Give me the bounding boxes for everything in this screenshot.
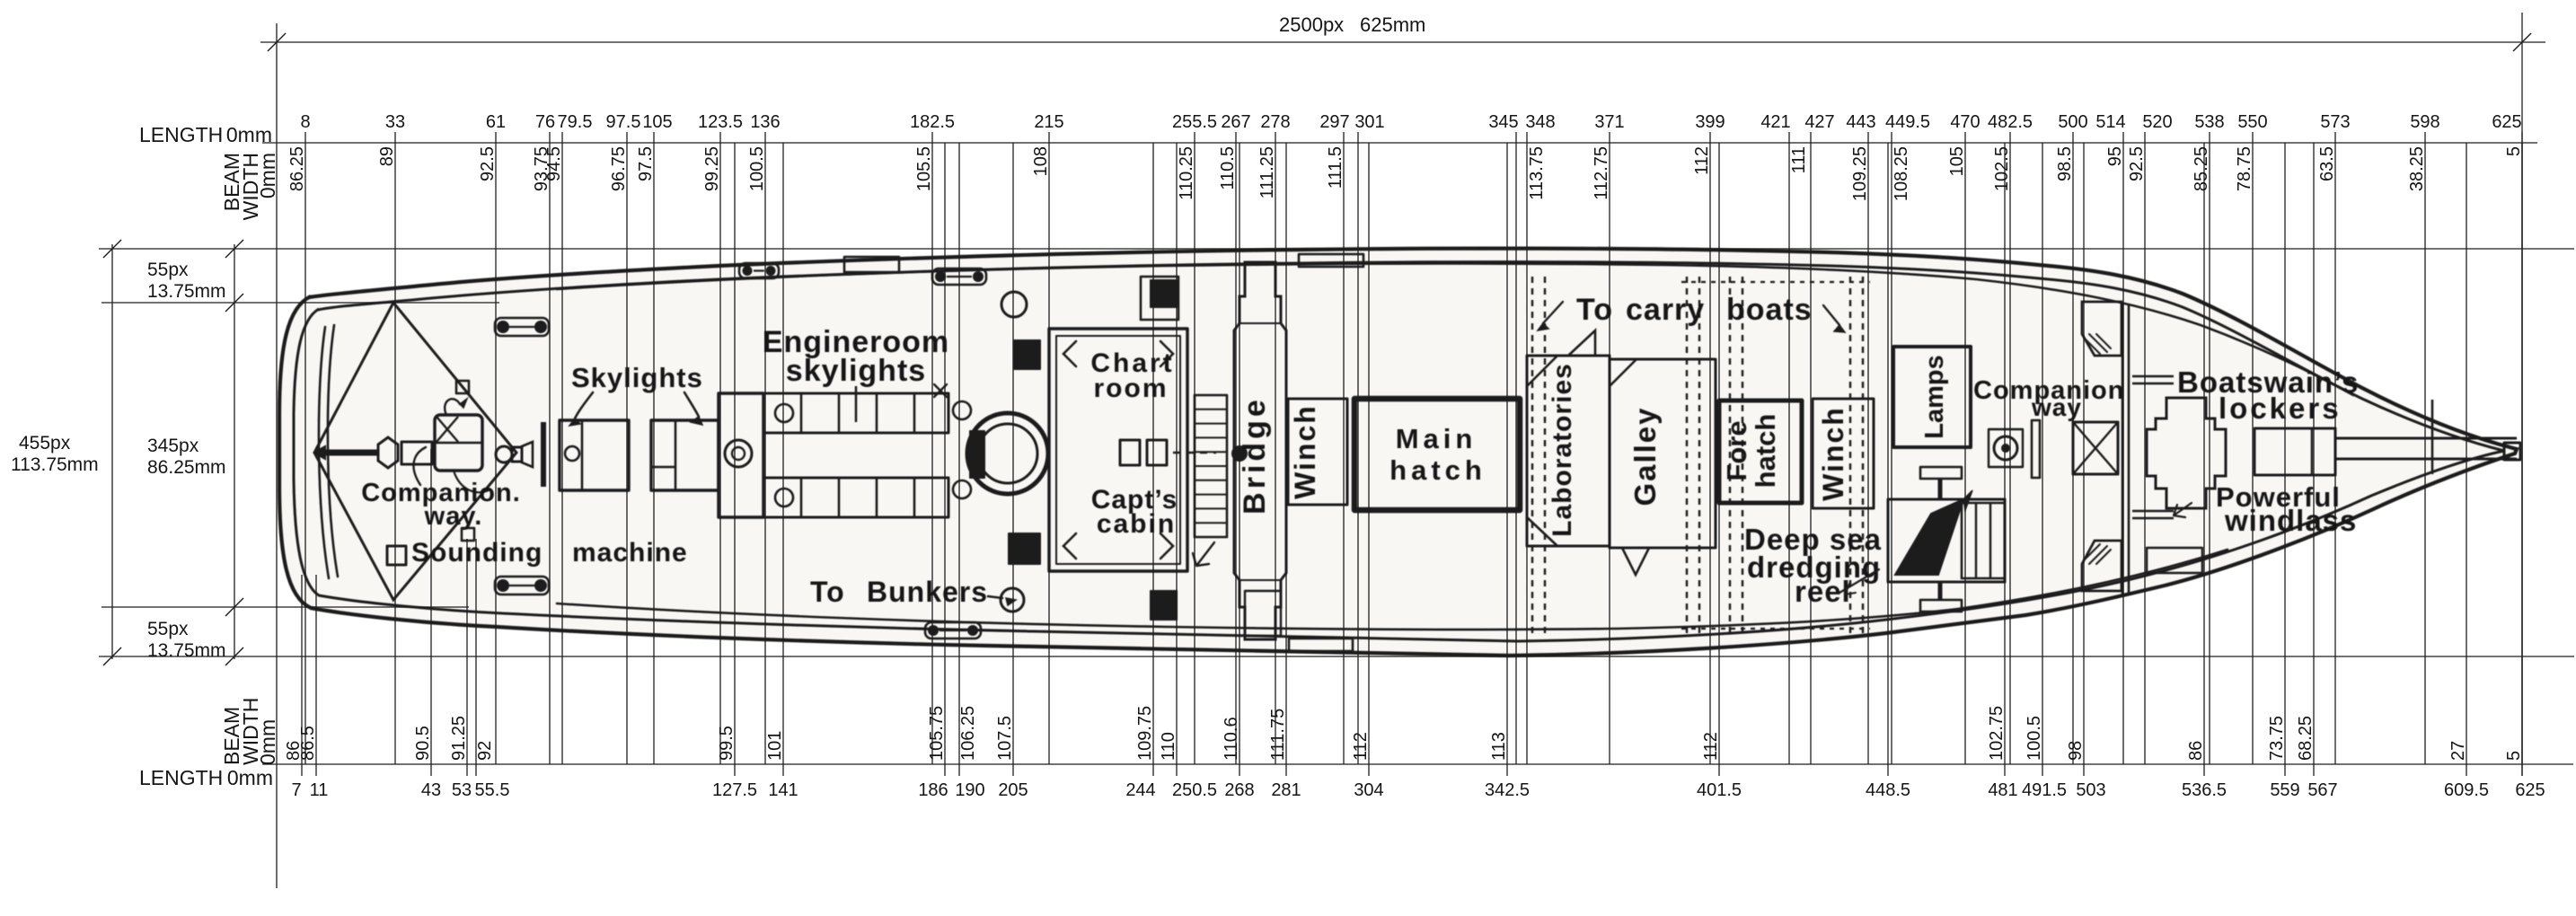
svg-text:448.5: 448.5 <box>1866 780 1910 800</box>
svg-text:99.5: 99.5 <box>717 726 737 761</box>
svg-text:Bunkers: Bunkers <box>867 576 988 608</box>
svg-text:0mm: 0mm <box>256 153 279 198</box>
svg-text:55px: 55px <box>147 619 189 639</box>
svg-text:136: 136 <box>750 112 780 132</box>
svg-text:567: 567 <box>2307 780 2337 800</box>
svg-text:99.25: 99.25 <box>702 146 722 191</box>
svg-text:78.75: 78.75 <box>2235 146 2254 191</box>
svg-text:345: 345 <box>1488 112 1518 132</box>
svg-text:110.25: 110.25 <box>1177 146 1196 200</box>
svg-text:348: 348 <box>1525 112 1555 132</box>
svg-text:27: 27 <box>2448 741 2468 761</box>
svg-text:LENGTH: LENGTH <box>139 123 223 146</box>
svg-text:573: 573 <box>2320 112 2350 132</box>
svg-text:112: 112 <box>1351 732 1371 761</box>
svg-text:108.25: 108.25 <box>1892 146 1911 201</box>
svg-text:86.25mm: 86.25mm <box>147 457 226 478</box>
svg-text:7: 7 <box>291 780 301 800</box>
svg-text:520: 520 <box>2142 112 2172 132</box>
svg-text:61: 61 <box>486 112 506 132</box>
svg-text:281: 281 <box>1271 780 1301 800</box>
svg-text:101: 101 <box>765 731 785 761</box>
svg-text:5: 5 <box>2504 751 2524 761</box>
svg-text:470: 470 <box>1950 112 1980 132</box>
svg-text:550: 550 <box>2237 112 2267 132</box>
svg-text:91.25: 91.25 <box>449 716 469 761</box>
svg-text:LENGTH: LENGTH <box>139 766 223 789</box>
svg-text:86.5: 86.5 <box>298 726 318 761</box>
svg-text:Winch: Winch <box>1289 404 1321 499</box>
svg-text:102.5: 102.5 <box>1992 146 2012 191</box>
svg-text:190: 190 <box>955 780 984 800</box>
svg-text:98.5: 98.5 <box>2055 146 2075 181</box>
svg-text:5: 5 <box>2504 146 2524 156</box>
svg-text:33: 33 <box>385 112 405 132</box>
svg-text:To: To <box>810 576 845 608</box>
svg-text:342.5: 342.5 <box>1485 780 1530 800</box>
svg-text:machine: machine <box>572 538 688 568</box>
svg-text:609.5: 609.5 <box>2444 780 2489 800</box>
svg-text:111: 111 <box>1789 146 1809 173</box>
svg-text:111.25: 111.25 <box>1257 146 1277 198</box>
svg-text:301: 301 <box>1354 112 1384 132</box>
svg-text:windlass: windlass <box>2224 504 2357 537</box>
svg-text:95: 95 <box>2105 146 2125 166</box>
svg-text:97.5: 97.5 <box>606 112 641 132</box>
svg-text:85.25: 85.25 <box>2192 146 2211 191</box>
svg-text:94.5: 94.5 <box>544 146 564 181</box>
svg-text:2500px: 2500px <box>1279 13 1344 36</box>
svg-text:304: 304 <box>1354 780 1383 800</box>
svg-text:carry: carry <box>1626 293 1705 327</box>
svg-text:421: 421 <box>1760 112 1790 132</box>
svg-text:73.75: 73.75 <box>2267 716 2287 761</box>
svg-text:Laboratories: Laboratories <box>1548 363 1577 537</box>
svg-text:13.75mm: 13.75mm <box>147 640 226 661</box>
svg-text:55.5: 55.5 <box>475 780 510 800</box>
svg-text:13.75mm: 13.75mm <box>147 281 226 302</box>
svg-text:109.75: 109.75 <box>1135 706 1155 761</box>
svg-text:92.5: 92.5 <box>478 146 498 181</box>
svg-text:cabin: cabin <box>1097 509 1176 539</box>
svg-text:371: 371 <box>1594 112 1624 132</box>
svg-text:98: 98 <box>2066 741 2086 761</box>
svg-text:108: 108 <box>1031 146 1051 176</box>
svg-text:113.75: 113.75 <box>1527 146 1547 200</box>
svg-text:110: 110 <box>1159 732 1178 761</box>
svg-text:559: 559 <box>2270 780 2299 800</box>
svg-text:way: way <box>2031 393 2082 421</box>
svg-text:127.5: 127.5 <box>712 780 757 800</box>
svg-text:53: 53 <box>452 780 472 800</box>
svg-text:536.5: 536.5 <box>2182 780 2227 800</box>
svg-text:345px: 345px <box>147 436 199 456</box>
svg-text:443: 443 <box>1846 112 1875 132</box>
svg-text:76: 76 <box>535 112 555 132</box>
svg-text:102.75: 102.75 <box>1987 706 2007 761</box>
svg-text:427: 427 <box>1804 112 1834 132</box>
svg-text:106.25: 106.25 <box>958 706 978 761</box>
svg-text:0mm: 0mm <box>226 123 272 146</box>
svg-text:Winch: Winch <box>1817 406 1849 501</box>
svg-text:182.5: 182.5 <box>910 112 955 132</box>
svg-text:Lamps: Lamps <box>1920 355 1949 438</box>
svg-text:way.: way. <box>424 502 483 531</box>
svg-text:105.75: 105.75 <box>927 706 947 761</box>
svg-text:105.5: 105.5 <box>914 146 934 191</box>
svg-text:92: 92 <box>475 741 495 761</box>
svg-text:503: 503 <box>2076 780 2105 800</box>
svg-text:11: 11 <box>310 780 329 800</box>
svg-text:105: 105 <box>1947 146 1967 176</box>
svg-text:room: room <box>1094 374 1169 403</box>
svg-text:113: 113 <box>1489 732 1509 761</box>
svg-text:244: 244 <box>1125 780 1155 800</box>
svg-text:55px: 55px <box>147 260 189 280</box>
svg-text:lockers: lockers <box>2219 392 2342 425</box>
svg-text:109.25: 109.25 <box>1850 146 1870 201</box>
svg-text:255.5: 255.5 <box>1172 112 1217 132</box>
svg-text:112.75: 112.75 <box>1592 146 1611 200</box>
svg-text:514: 514 <box>2095 112 2125 132</box>
svg-text:123.5: 123.5 <box>698 112 743 132</box>
svg-text:112: 112 <box>1692 146 1712 175</box>
svg-text:278: 278 <box>1260 112 1290 132</box>
svg-text:399: 399 <box>1695 112 1725 132</box>
svg-text:625: 625 <box>2515 780 2545 800</box>
svg-text:491.5: 491.5 <box>2022 780 2067 800</box>
svg-text:205: 205 <box>998 780 1028 800</box>
svg-text:86: 86 <box>2186 741 2206 761</box>
svg-text:Fore: Fore <box>1721 420 1752 480</box>
svg-text:455px: 455px <box>19 433 71 454</box>
svg-text:625: 625 <box>2492 112 2521 132</box>
svg-text:112: 112 <box>1701 732 1721 761</box>
svg-text:111.5: 111.5 <box>1326 146 1345 189</box>
svg-text:63.5: 63.5 <box>2317 146 2337 181</box>
svg-text:92.5: 92.5 <box>2127 146 2147 181</box>
svg-text:481: 481 <box>1988 780 2017 800</box>
svg-text:141: 141 <box>768 780 798 800</box>
svg-text:401.5: 401.5 <box>1697 780 1742 800</box>
svg-text:100.5: 100.5 <box>2025 716 2044 761</box>
svg-text:598: 598 <box>2410 112 2439 132</box>
svg-text:Sounding: Sounding <box>411 538 543 568</box>
svg-text:500: 500 <box>2058 112 2087 132</box>
svg-text:107.5: 107.5 <box>995 716 1015 761</box>
svg-text:89: 89 <box>377 146 397 166</box>
svg-text:538: 538 <box>2194 112 2224 132</box>
svg-text:186: 186 <box>918 780 948 800</box>
svg-text:0mm: 0mm <box>227 766 273 789</box>
svg-text:8: 8 <box>300 112 310 132</box>
svg-text:625mm: 625mm <box>1360 13 1425 36</box>
svg-text:68.25: 68.25 <box>2296 716 2316 761</box>
svg-text:97.5: 97.5 <box>636 146 656 181</box>
svg-text:86.25: 86.25 <box>287 146 307 191</box>
svg-text:Skylights: Skylights <box>571 362 703 393</box>
svg-text:113.75mm: 113.75mm <box>11 454 99 475</box>
svg-text:215: 215 <box>1034 112 1063 132</box>
svg-text:96.75: 96.75 <box>609 146 629 191</box>
svg-text:111.75: 111.75 <box>1268 709 1288 761</box>
svg-text:79.5: 79.5 <box>558 112 593 132</box>
svg-text:hatch: hatch <box>1750 414 1781 489</box>
svg-text:250.5: 250.5 <box>1172 780 1217 800</box>
svg-text:skylights: skylights <box>786 354 926 388</box>
svg-text:110.5: 110.5 <box>1218 146 1238 190</box>
svg-text:268: 268 <box>1224 780 1254 800</box>
svg-text:110.6: 110.6 <box>1222 717 1241 761</box>
svg-text:0mm: 0mm <box>256 719 279 765</box>
svg-text:Galley: Galley <box>1628 406 1662 506</box>
svg-text:Bridge: Bridge <box>1238 396 1272 515</box>
svg-text:boats: boats <box>1726 293 1813 327</box>
svg-text:38.25: 38.25 <box>2407 146 2427 191</box>
svg-text:hatch: hatch <box>1389 454 1486 486</box>
svg-text:105: 105 <box>642 112 672 132</box>
svg-text:To: To <box>1576 293 1613 327</box>
svg-text:43: 43 <box>421 780 441 800</box>
svg-text:100.5: 100.5 <box>747 146 767 191</box>
svg-text:449.5: 449.5 <box>1885 112 1930 132</box>
svg-text:482.5: 482.5 <box>1988 112 2033 132</box>
svg-text:Main: Main <box>1396 423 1478 454</box>
svg-text:267: 267 <box>1221 112 1250 132</box>
svg-text:90.5: 90.5 <box>413 726 433 761</box>
svg-text:297: 297 <box>1319 112 1349 132</box>
